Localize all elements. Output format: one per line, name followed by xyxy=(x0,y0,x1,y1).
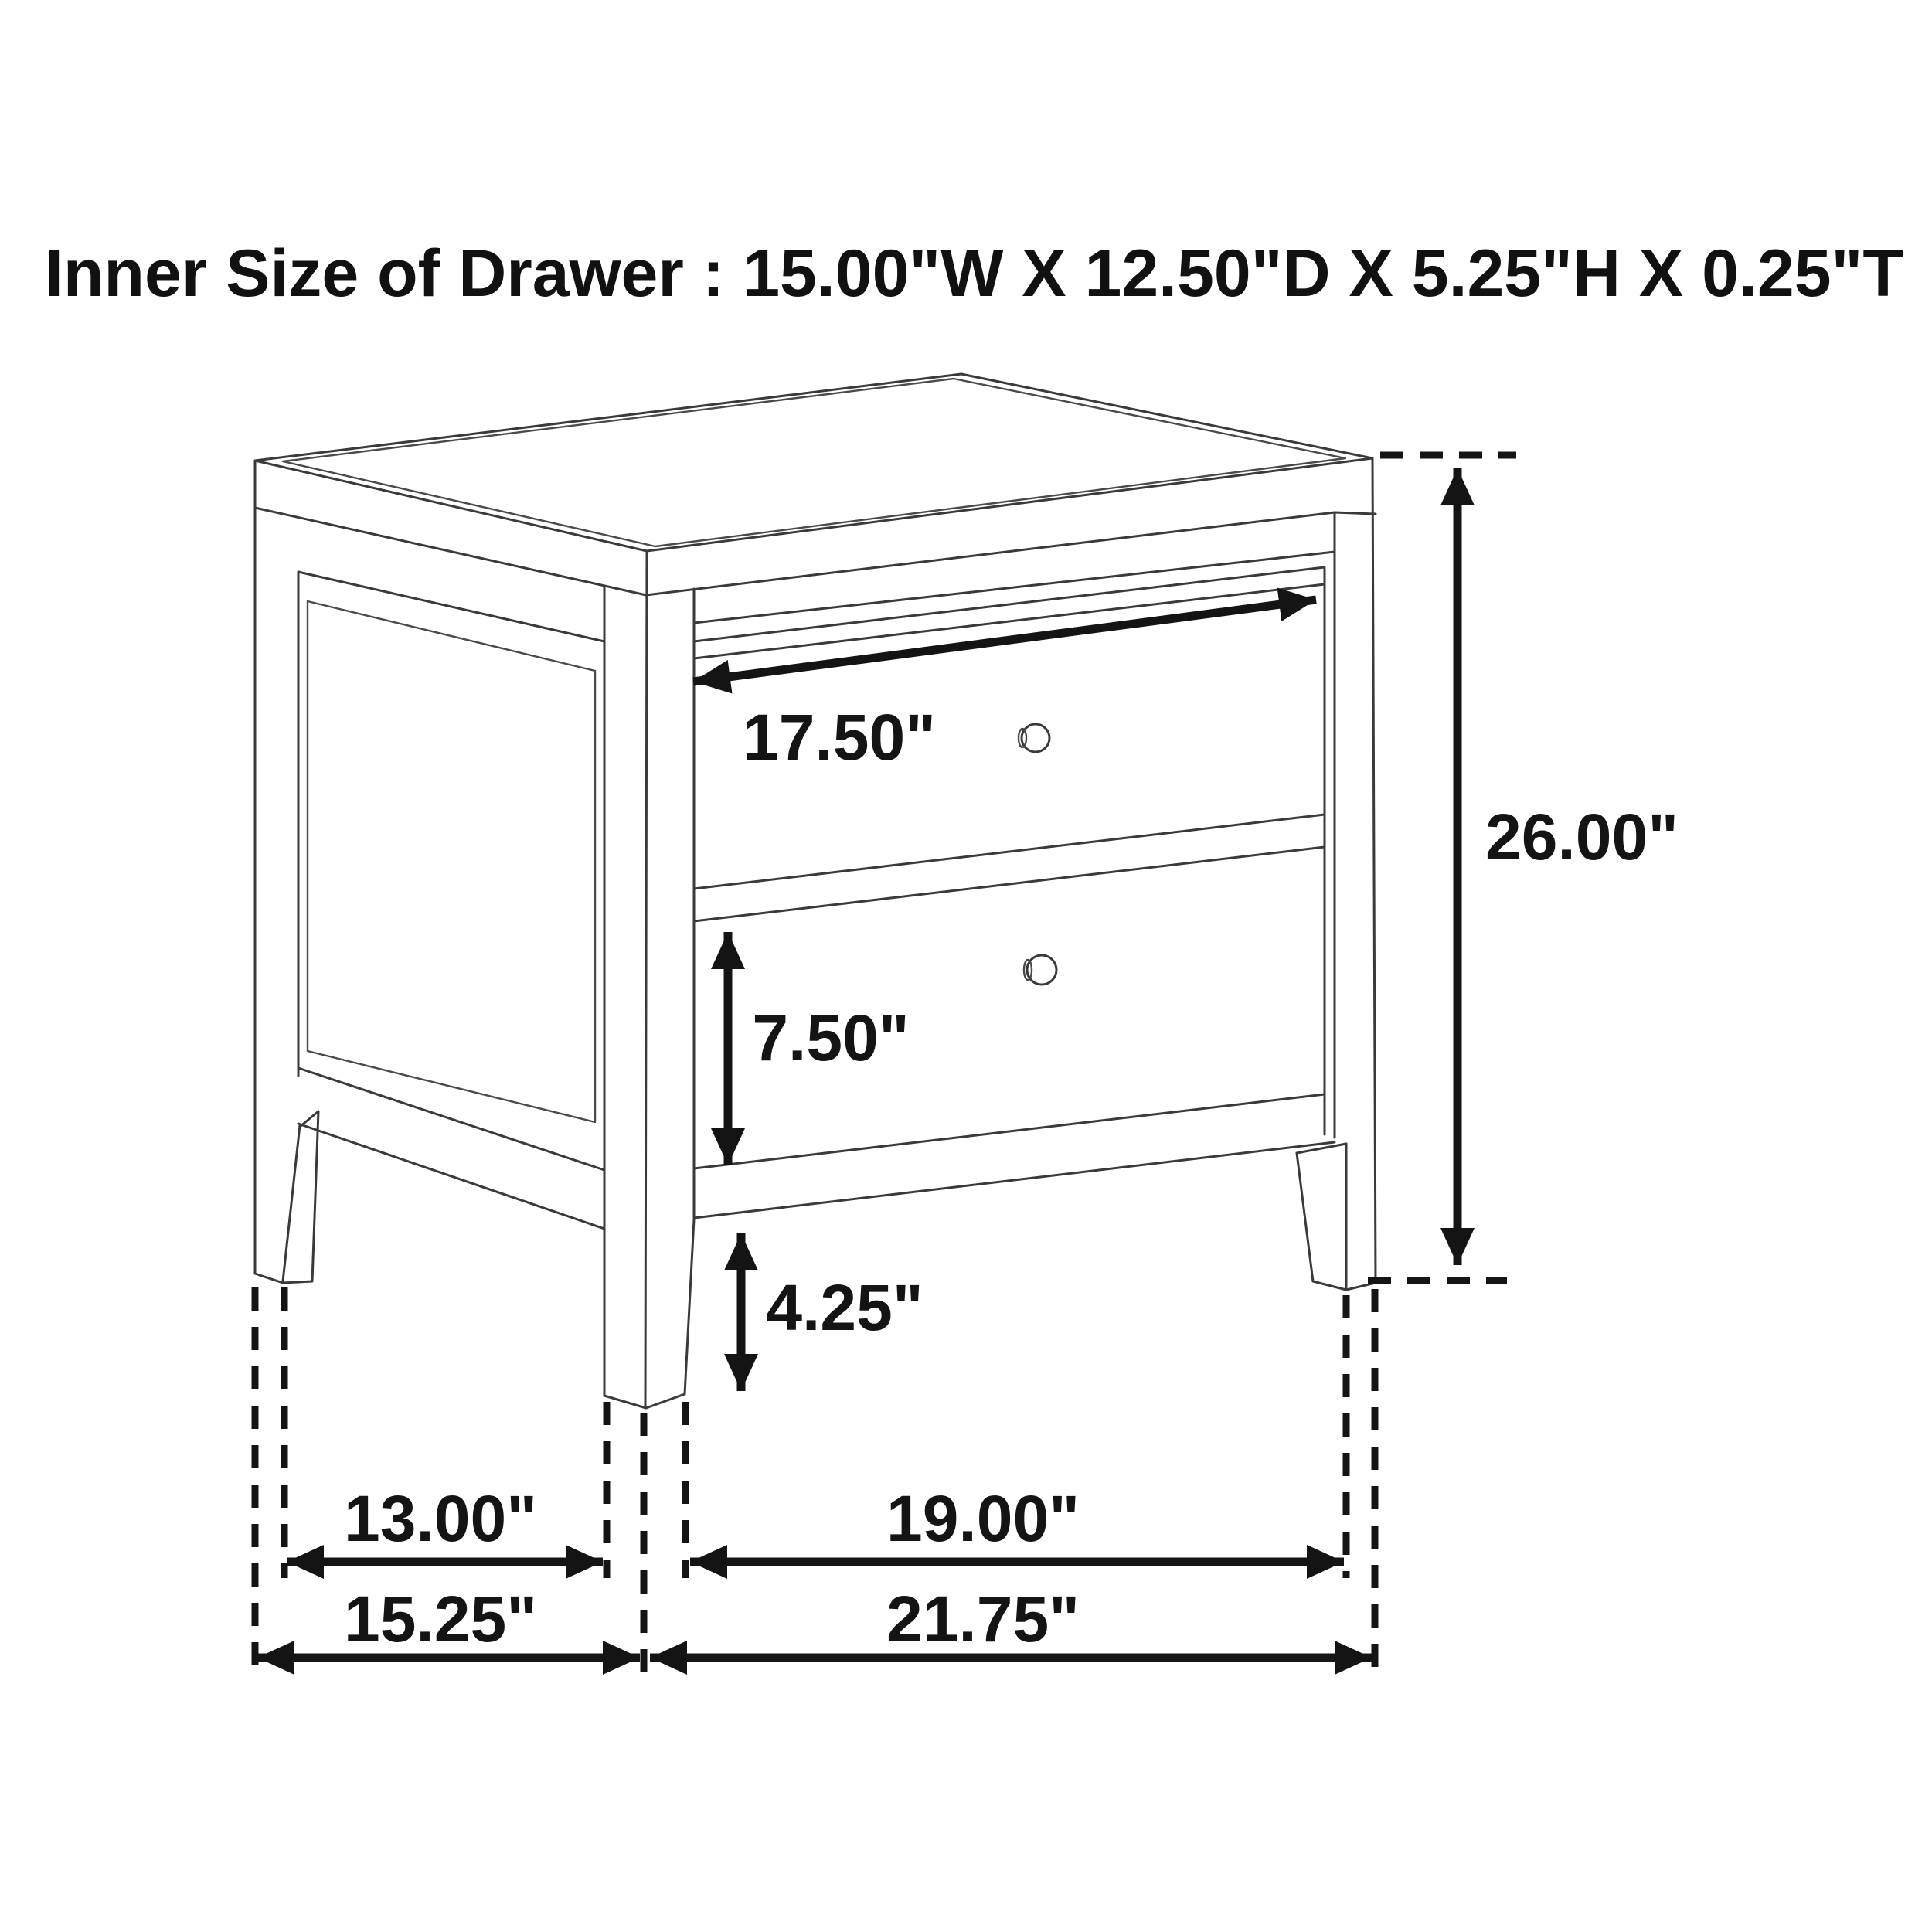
dim-label-side-overall-depth: 15.25" xyxy=(344,1583,537,1655)
top-drawer-bottom-edge xyxy=(694,815,1325,889)
diagram-title: Inner Size of Drawer : 15.00"W X 12.50"D… xyxy=(45,236,1903,311)
tabletop-bottom-left-edge xyxy=(255,508,646,595)
front-right-leg-taper xyxy=(1297,1153,1313,1281)
front-left-corner-edge xyxy=(645,551,647,1408)
front-left-leg xyxy=(604,1219,694,1408)
dimension-overall-height: 26.00" xyxy=(1458,468,1679,1265)
dimension-drawer-front-height: 7.50" xyxy=(728,932,910,1165)
dim-label-drawer-front-height: 7.50" xyxy=(752,1002,909,1074)
side-bottom-rail-bottom xyxy=(298,1124,604,1229)
dim-label-floor-clearance: 4.25" xyxy=(766,1271,923,1344)
tabletop-face xyxy=(255,374,1372,551)
top-surface xyxy=(255,374,1376,595)
front-right-leg xyxy=(1297,1144,1376,1290)
top-drawer-top-edge xyxy=(694,584,1325,658)
dimension-floor-clearance: 4.25" xyxy=(741,1233,923,1391)
back-left-leg-bottom xyxy=(255,1274,283,1283)
bottom-drawer-top-edge xyxy=(694,847,1325,921)
back-left-leg-front-face xyxy=(283,1111,318,1283)
dim-label-drawer-opening-width: 17.50" xyxy=(743,701,936,774)
dim-label-side-leg-spacing: 13.00" xyxy=(344,1482,537,1555)
front-left-leg-taper xyxy=(685,1219,694,1394)
dim-label-front-leg-spacing: 19.00" xyxy=(886,1482,1080,1555)
dimension-front-overall-width: 21.75" xyxy=(650,1583,1372,1658)
nightstand-drawing xyxy=(255,374,1376,1408)
dimension-side-leg-spacing: 13.00" xyxy=(287,1482,603,1562)
dim-label-overall-height: 26.00" xyxy=(1485,801,1679,873)
side-bottom-rail-top xyxy=(298,1068,604,1170)
side-recessed-panel xyxy=(308,601,595,1122)
front-face xyxy=(694,512,1335,1219)
front-bottom-rail-bottom xyxy=(694,1142,1335,1218)
bottom-drawer-bottom-edge xyxy=(694,1094,1325,1168)
back-left-leg-taper xyxy=(283,1125,300,1281)
tabletop-inset-border xyxy=(283,379,1345,546)
tabletop-bottom-front-edge xyxy=(646,512,1376,595)
right-outer-edge xyxy=(1372,458,1376,1283)
furniture-dimension-diagram: Inner Size of Drawer : 15.00"W X 12.50"D… xyxy=(0,0,1932,1932)
dimension-front-leg-spacing: 19.00" xyxy=(690,1482,1344,1562)
back-left-leg xyxy=(255,508,318,1283)
front-right-leg-bottom xyxy=(1313,1281,1376,1290)
dimension-drawer-opening-width: 17.50" xyxy=(693,600,1316,774)
dim-label-front-overall-width: 21.75" xyxy=(886,1583,1080,1655)
dimension-side-overall-depth: 15.25" xyxy=(257,1583,640,1658)
side-top-rail-bottom xyxy=(298,572,604,641)
left-side-panel xyxy=(298,572,604,1396)
diagram-canvas: Inner Size of Drawer : 15.00"W X 12.50"D… xyxy=(0,0,1932,1932)
dimensions: 17.50" 7.50" 4.25" 26.00" 13.00" 19.00" xyxy=(257,468,1679,1658)
